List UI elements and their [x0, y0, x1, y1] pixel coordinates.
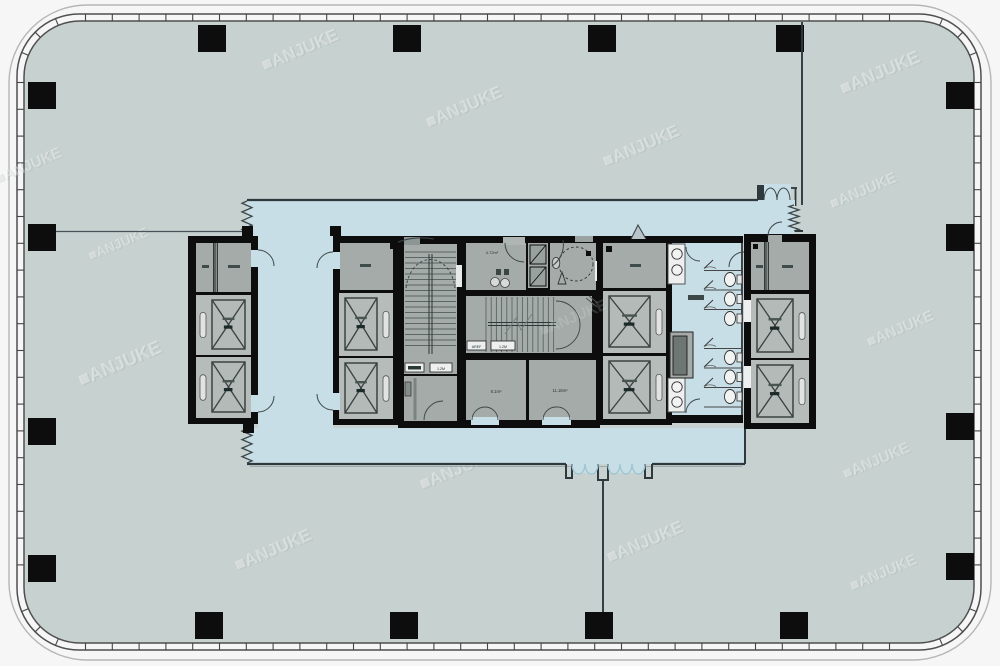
svg-text:1.2M: 1.2M [499, 345, 507, 349]
svg-text:1.2M: 1.2M [437, 367, 445, 371]
svg-text:4.72m²: 4.72m² [486, 250, 499, 255]
svg-text:AREF: AREF [472, 345, 482, 349]
svg-text:8.1m²: 8.1m² [491, 389, 502, 394]
svg-text:11.16m²: 11.16m² [552, 388, 568, 393]
